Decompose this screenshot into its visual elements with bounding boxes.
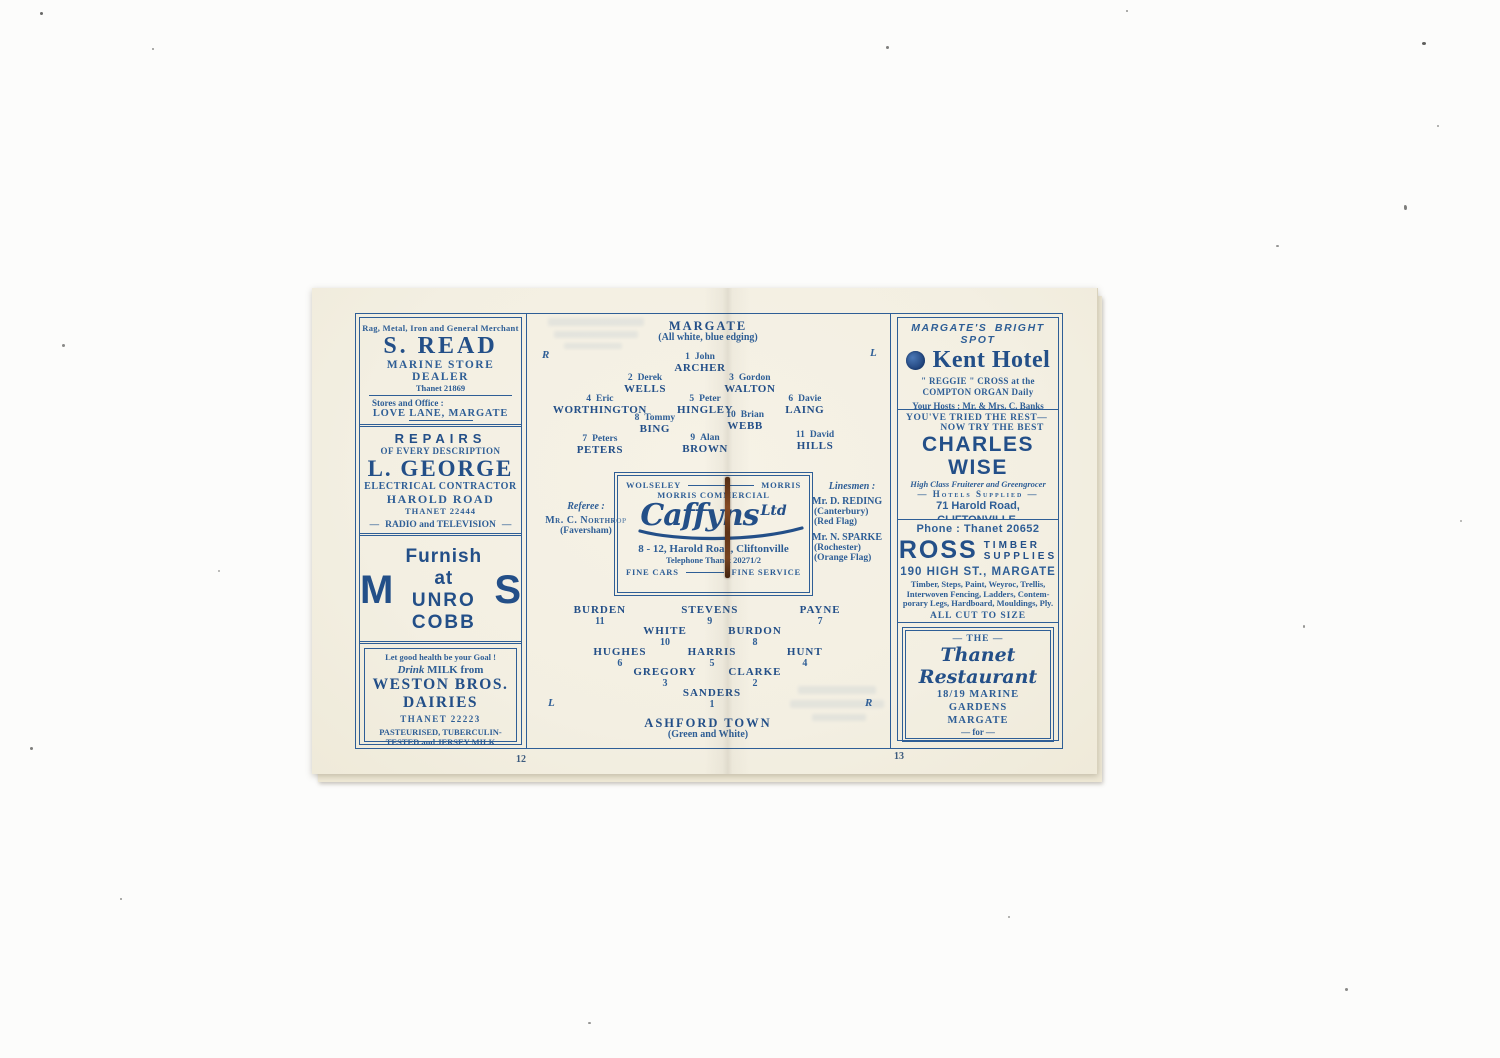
paper-speck [40, 12, 43, 15]
ad-role: ELECTRICAL CONTRACTOR [360, 481, 521, 492]
first-name: Peter [699, 394, 721, 404]
linesman-flag: (Red Flag) [812, 517, 892, 527]
paper-speck [1437, 125, 1439, 127]
advertiser-name: WESTON BROS. [365, 676, 516, 694]
ad-meals: LUNCHEONS :: TEAS :: DINNERS [912, 739, 1044, 742]
first-name: Davie [798, 394, 821, 404]
shirt-number: 3 [729, 373, 734, 383]
shirt-number: 4 [586, 394, 591, 404]
first-name: Eric [596, 394, 613, 404]
linesman-name: Mr. D. REDING [812, 496, 892, 507]
linesman-name: Mr. N. SPARKE [812, 532, 892, 543]
ross-logotype: ROSS TIMBER SUPPLIES [898, 536, 1058, 565]
ad-services: Wipers Supplied : Warehouses Cleared [360, 423, 521, 424]
ad-phone: Thanet 21869 [360, 383, 521, 393]
shirt-number: 7 [582, 434, 587, 444]
staple [725, 477, 730, 578]
paper-speck [152, 48, 154, 50]
ad-l-george: REPAIRS OF EVERY DESCRIPTION L. GEORGE E… [360, 424, 521, 533]
divider [369, 395, 512, 396]
linesman-town: (Canterbury) [812, 507, 892, 517]
divider [688, 485, 754, 486]
fine-cars-text: FINE CARS [626, 567, 679, 577]
paper-speck [886, 46, 889, 49]
shirt-number: 8 [635, 413, 640, 423]
margate-player-7: 7Peters PETERS [577, 434, 623, 456]
margate-player-10: 10Brian WEBB [726, 410, 764, 432]
ashford-player-8: BURDON 8 [728, 625, 782, 648]
ad-address: LOVE LANE, MARGATE [360, 408, 521, 419]
right-ads-column: MARGATE'S BRIGHT SPOT Kent Hotel " REGGI… [897, 317, 1059, 741]
programme-page-spread: Rag, Metal, Iron and General Merchant S.… [312, 288, 1098, 774]
paper-speck [1345, 988, 1348, 991]
ashford-player-11: BURDEN 11 [574, 604, 626, 627]
ad-line: " REGGIE " CROSS at the [898, 376, 1058, 387]
surname: CLARKE [728, 666, 781, 678]
ad-footer: RADIO and TELEVISION [360, 520, 521, 530]
advertiser-name: Thanet Restaurant [906, 644, 1050, 688]
ad-subtitle: High Class Fruiterer and Greengrocer [898, 479, 1058, 489]
surname: HUGHES [593, 646, 646, 658]
ad-word-supplies: SUPPLIES [984, 551, 1057, 562]
ad-slogan-line: NOW TRY THE BEST [898, 423, 1058, 433]
big-letter-m: M [360, 568, 393, 613]
paper-speck [1276, 245, 1279, 247]
linesmen-label: Linesmen : [812, 481, 892, 492]
shirt-number: 1 [683, 699, 741, 710]
surname: PETERS [577, 444, 623, 456]
ad-hotels-supplied: — Hotels Supplied — [898, 489, 1058, 499]
globe-emblem-icon [906, 351, 925, 370]
surname: BING [635, 423, 676, 435]
shirt-number: 1 [685, 352, 690, 362]
ad-town: MARGATE [906, 714, 1050, 727]
first-name: John [695, 352, 715, 362]
caffyns-logo: CaffynsLtd [626, 498, 801, 542]
linesman-town: (Rochester) [812, 543, 892, 553]
surname: STEVENS [681, 604, 738, 616]
margate-player-2: 2Derek WELLS [624, 373, 666, 395]
margate-player-6: 6Davie LAING [785, 394, 824, 416]
brand-wolseley: WOLSELEY [626, 480, 681, 490]
fine-service-text: FINE SERVICE [731, 567, 801, 577]
big-letter-s: S [494, 568, 521, 613]
team-sheet: MARGATE (All white, blue edging) R L 1Jo… [526, 313, 890, 749]
wing-label-right: R [865, 697, 872, 709]
ad-line: Drink MILK from [365, 664, 516, 676]
paper-speck [30, 747, 33, 750]
surname: BURDON [728, 625, 782, 637]
surname: SANDERS [683, 687, 741, 699]
first-name: Gordon [739, 373, 771, 383]
logo-swoosh-underline [634, 526, 806, 542]
ad-word: MILK from [424, 664, 483, 676]
ad-line: COMPTON ORGAN Daily [898, 387, 1058, 398]
ad-phone: THANET 22444 [360, 506, 521, 516]
linesmen-block: Linesmen : Mr. D. REDING (Canterbury) (R… [812, 481, 892, 563]
ad-charles-wise: YOU'VE TRIED THE REST— NOW TRY THE BEST … [898, 409, 1058, 519]
paper-speck [1460, 520, 1462, 522]
ad-ross-timber: Phone : Thanet 20652 ROSS TIMBER SUPPLIE… [898, 519, 1058, 622]
ad-address: 190 HIGH ST., MARGATE [898, 566, 1058, 578]
surname: ARCHER [674, 362, 725, 374]
margate-player-5: 5Peter HINGLEY [677, 394, 733, 416]
ad-subheading: OF EVERY DESCRIPTION [360, 446, 521, 456]
paper-speck [1008, 916, 1010, 918]
margate-player-3: 3Gordon WALTON [724, 373, 775, 395]
ad-slogan-line: YOU'VE TRIED THE REST— [898, 413, 1058, 423]
margate-player-8: 8Tommy BING [635, 413, 676, 435]
first-name: Tommy [644, 413, 675, 423]
kent-hotel-logotype: Kent Hotel [898, 347, 1058, 374]
ad-the: — THE — [906, 634, 1050, 644]
page-number-left: 12 [516, 754, 526, 765]
ad-address: 18/19 MARINE GARDENS [906, 688, 1050, 714]
ashford-player-1: SANDERS 1 [683, 687, 741, 710]
ashford-player-9: STEVENS 9 [681, 604, 738, 627]
shirt-number: 10 [726, 410, 736, 420]
paper-speck [1303, 625, 1305, 628]
shirt-number: 2 [628, 373, 633, 383]
wing-label-right: R [542, 349, 549, 361]
ad-hosts: Your Hosts : Mr. & Mrs. C. Banks [898, 401, 1058, 409]
ad-weston-dairies: Let good health be your Goal ! Drink MIL… [360, 641, 521, 746]
surname: GREGORY [633, 666, 696, 678]
first-name: Peters [592, 434, 617, 444]
ad-tagline: MARGATE'S BRIGHT SPOT [898, 322, 1058, 346]
shirt-number: 11 [796, 430, 805, 440]
paper-speck [62, 344, 65, 347]
ashford-player-10: WHITE 10 [643, 625, 687, 648]
ad-phone: Phone : Thanet 20652 [898, 523, 1058, 535]
first-name: David [810, 430, 834, 440]
margate-player-4: 4Eric WORTHINGTON [553, 394, 647, 416]
divider [409, 420, 473, 421]
ad-cut-to-size: ALL CUT TO SIZE [898, 611, 1058, 621]
ad-inner-border: — THE — Thanet Restaurant 18/19 MARINE G… [905, 630, 1051, 739]
ad-thanet-restaurant: — THE — Thanet Restaurant 18/19 MARINE G… [898, 622, 1058, 742]
ad-kent-hotel: MARGATE'S BRIGHT SPOT Kent Hotel " REGGI… [898, 318, 1058, 409]
shirt-number: 9 [690, 433, 695, 443]
shirt-number: 7 [800, 616, 841, 627]
surname: HARRIS [688, 646, 737, 658]
surname: LAING [785, 404, 824, 416]
surname: HUNT [787, 646, 823, 658]
surname: BROWN [682, 443, 728, 455]
wing-label-left: L [870, 347, 877, 359]
surname: WEBB [726, 420, 764, 432]
home-team-kit: (All white, blue edging) [526, 332, 890, 343]
paper-speck [1404, 205, 1407, 210]
caffyns-brands: WOLSELEY MORRIS [626, 480, 801, 490]
wing-label-left: L [548, 697, 555, 709]
advertiser-name: DAIRIES [365, 694, 516, 712]
ad-tagline: Rag, Metal, Iron and General Merchant [360, 323, 521, 333]
left-ads-column: Rag, Metal, Iron and General Merchant S.… [359, 317, 522, 745]
surname: WHITE [643, 625, 687, 637]
shirt-number: 6 [788, 394, 793, 404]
surname: PAYNE [800, 604, 841, 616]
advertiser-name: S. READ [360, 333, 521, 359]
paper-speck [588, 1022, 591, 1024]
ad-subtitle: MARINE STORE DEALER [360, 359, 521, 383]
ad-phone: THANET 22223 [365, 714, 516, 724]
shirt-number: 11 [574, 616, 626, 627]
paper-speck [1126, 10, 1128, 12]
ad-word-italic: Drink [398, 664, 425, 676]
ad-line: Furnish at [394, 546, 493, 590]
ad-line: UNRO COBB [394, 590, 493, 634]
ad-footer-line: TESTED and JERSEY MILK [365, 738, 516, 747]
caffyns-footer: FINE CARS FINE SERVICE [626, 567, 801, 577]
ad-caffyns: WOLSELEY MORRIS MORRIS COMMERCIAL Caffyn… [617, 475, 810, 593]
surname: HINGLEY [677, 404, 733, 416]
caffyns-ltd-text: Ltd [761, 503, 787, 519]
shirt-number: 5 [689, 394, 694, 404]
ad-address: HAROLD ROAD [360, 492, 521, 506]
shirt-number: 4 [787, 658, 823, 669]
margate-player-9: 9Alan BROWN [682, 433, 728, 455]
ad-address: 8 - 12, Harold Road, Cliftonville [626, 543, 801, 555]
surname: BURDEN [574, 604, 626, 616]
ashford-player-4: HUNT 4 [787, 646, 823, 669]
advertiser-name: CHARLES WISE [898, 433, 1058, 479]
paper-speck [218, 570, 220, 572]
ad-s-read: Rag, Metal, Iron and General Merchant S.… [360, 318, 521, 424]
ad-for: — for — [906, 727, 1050, 737]
ad-heading: REPAIRS [360, 431, 521, 446]
ashford-player-7: PAYNE 7 [800, 604, 841, 627]
paper-speck [120, 898, 122, 900]
ad-address: 71 Harold Road, CLIFTONVILLE, [898, 499, 1058, 519]
surname: HILLS [796, 440, 834, 452]
first-name: Brian [741, 410, 764, 420]
margate-player-11: 11David HILLS [796, 430, 834, 452]
ad-inner-border: Let good health be your Goal ! Drink MIL… [364, 648, 517, 742]
ad-footer: PASTEURISED, TUBERCULIN- TESTED and JERS… [365, 728, 516, 746]
ad-word-timber: TIMBER [984, 540, 1040, 551]
ad-phone: Telephone Thanet 20271/2 [626, 555, 801, 565]
ashford-player-3: GREGORY 3 [633, 666, 696, 689]
ad-label: Stores and Office : [360, 398, 521, 408]
margate-player-1: 1John ARCHER [674, 352, 725, 374]
ashford-player-2: CLARKE 2 [728, 666, 781, 689]
ad-line: porary Legs, Hardboard, Mouldings, Ply. [898, 599, 1058, 609]
munro-cobbs-logotype: M Furnish at UNRO COBB S [360, 546, 521, 634]
ad-munro-cobbs: M Furnish at UNRO COBB S 223/9 Northdown… [360, 533, 521, 641]
linesman-flag: (Orange Flag) [812, 553, 892, 563]
surname: WORTHINGTON [553, 404, 647, 416]
advertiser-name: Kent Hotel [933, 347, 1051, 374]
divider [686, 572, 725, 573]
ad-tagline: Let good health be your Goal ! [365, 652, 516, 662]
away-team-kit: (Green and White) [526, 729, 890, 740]
page-number-right: 13 [894, 751, 904, 762]
first-name: Alan [700, 433, 720, 443]
advertiser-name: ROSS [899, 536, 978, 565]
brand-morris: MORRIS [761, 480, 801, 490]
advertiser-name: L. GEORGE [360, 456, 521, 481]
shirt-number: 10 [643, 637, 687, 648]
first-name: Derek [638, 373, 663, 383]
paper-speck [1422, 42, 1426, 45]
